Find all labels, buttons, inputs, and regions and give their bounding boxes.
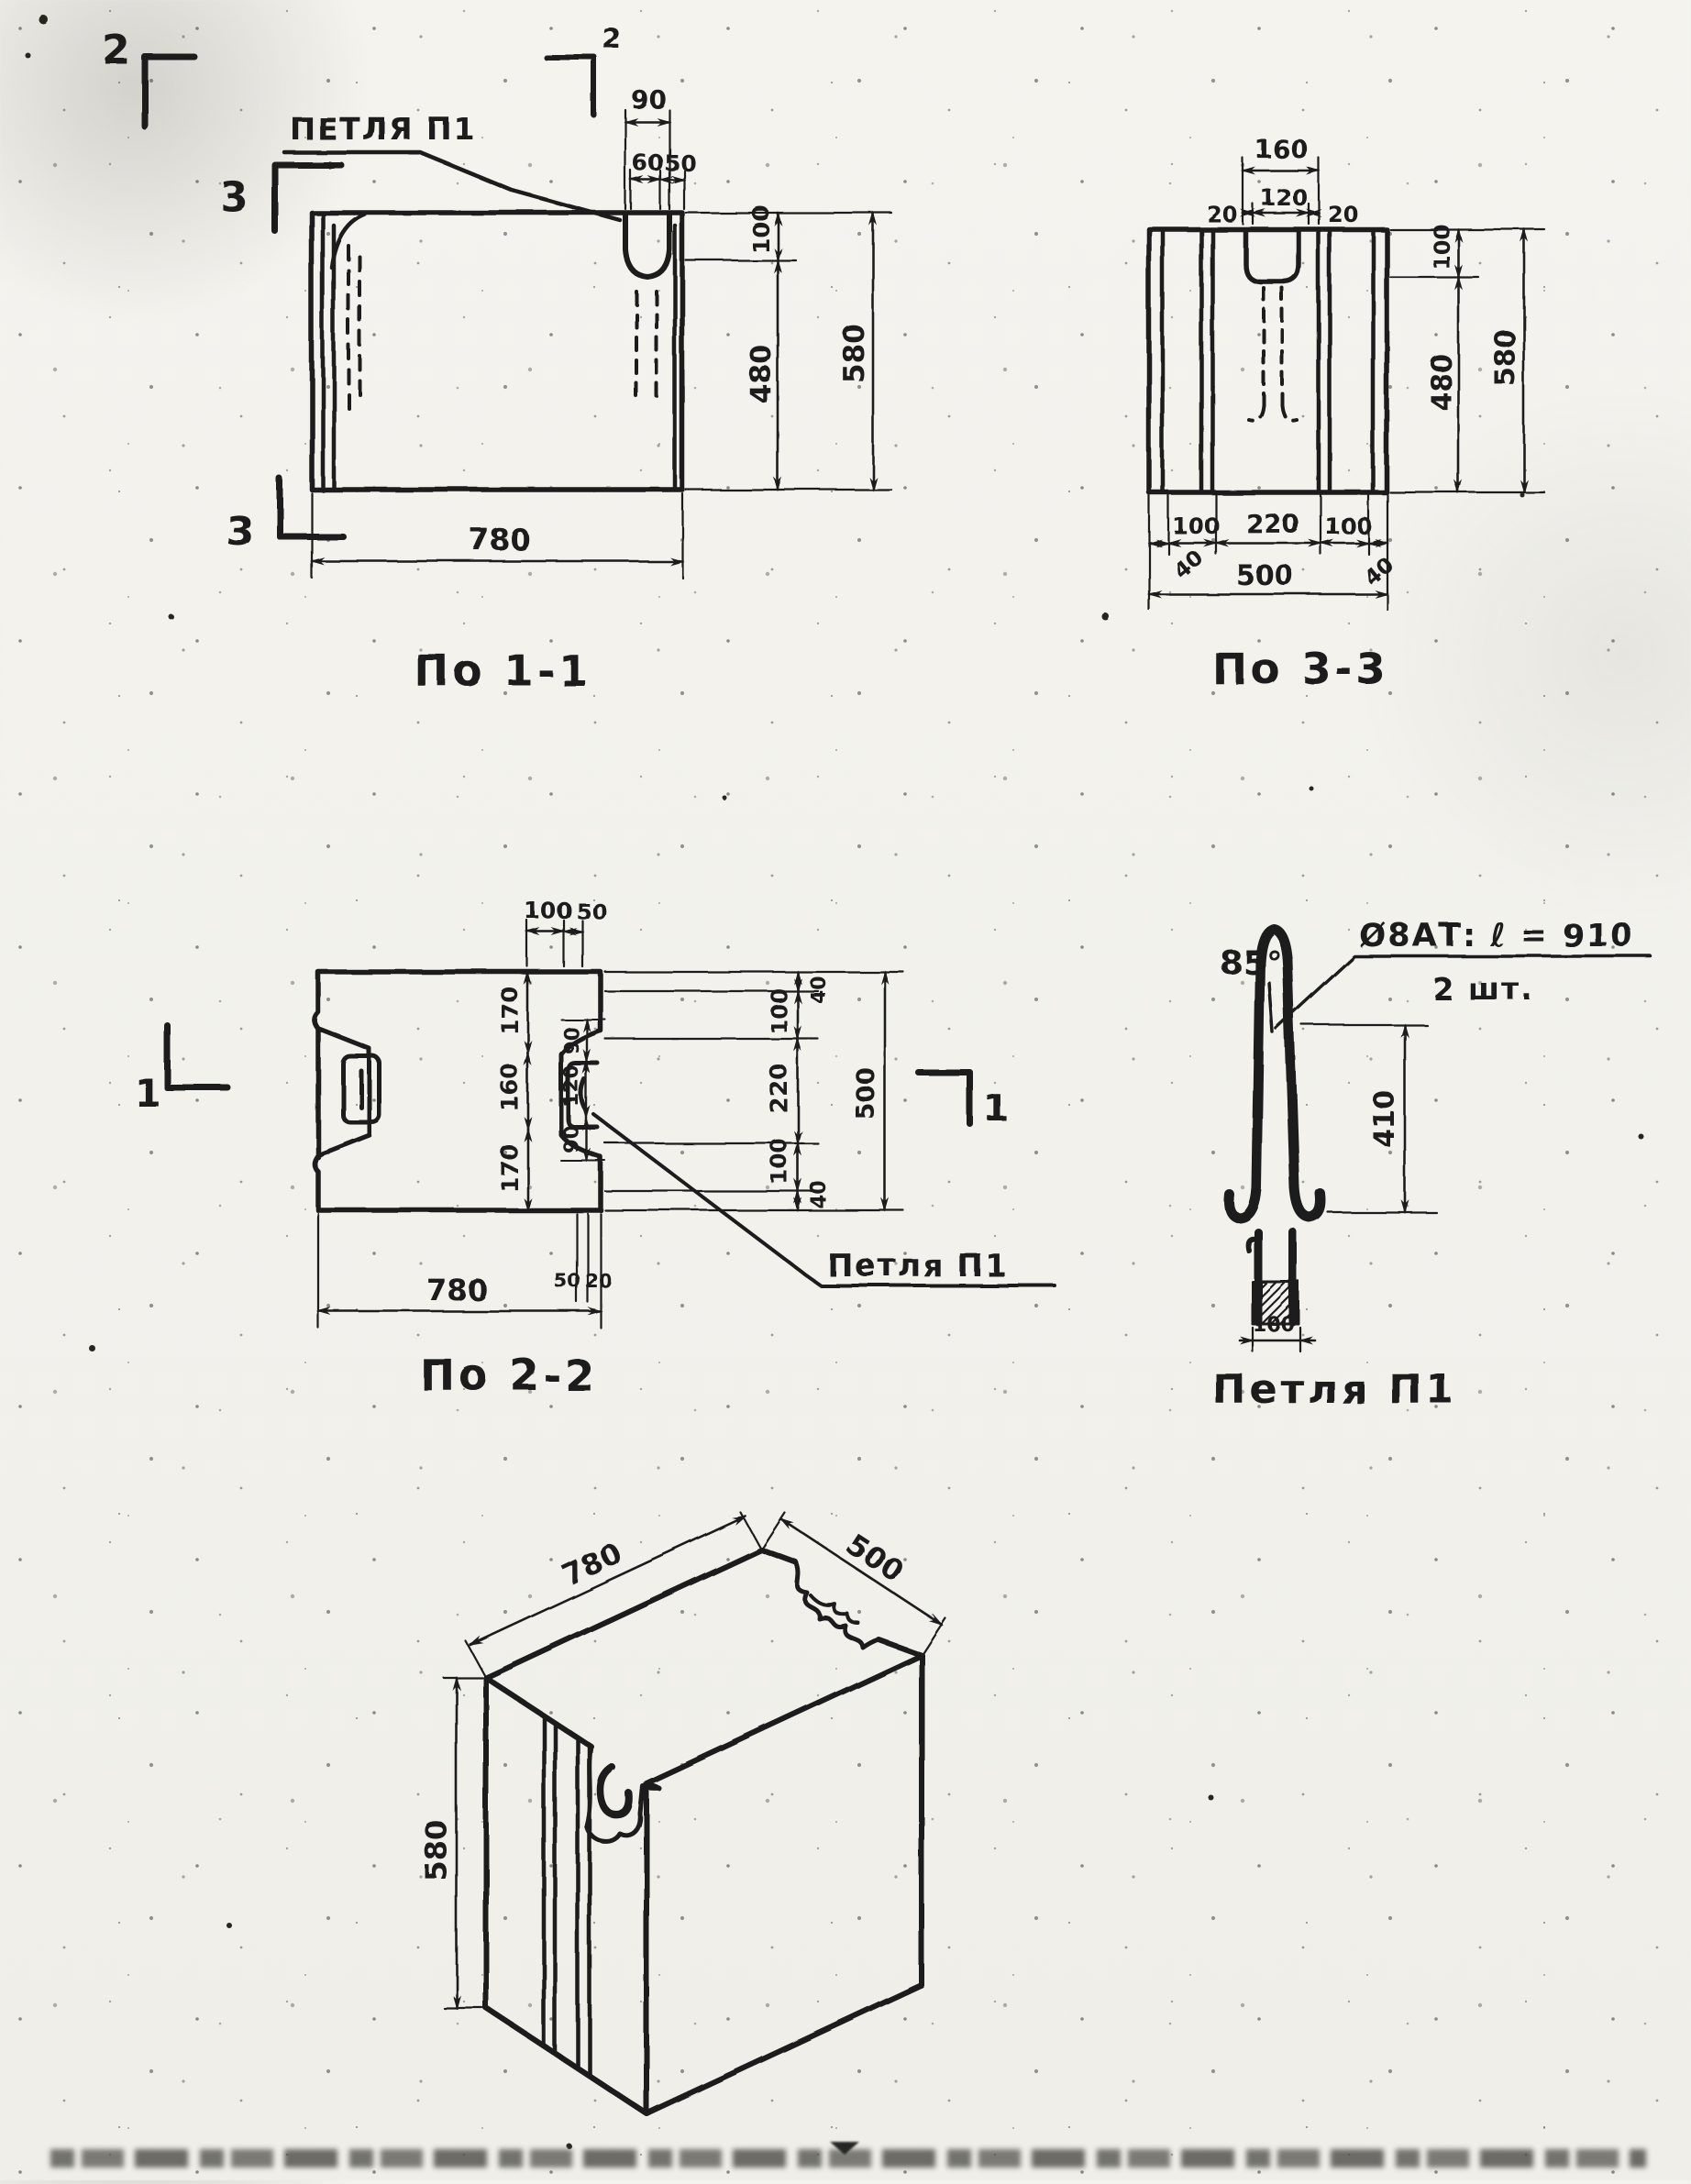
- dim-100t-label-po33: 100: [1429, 224, 1454, 270]
- caption-po11: По 1-1: [414, 646, 591, 696]
- dim-100a-label: 100: [767, 988, 792, 1034]
- dim-20-label-po22: 20: [585, 1270, 612, 1292]
- section-marker-3-top-label: 3: [220, 174, 249, 221]
- dim-160-label-po22: 160: [496, 1064, 523, 1111]
- dim-170b-label: 170: [496, 1144, 523, 1192]
- dim-100r-label: 100: [1324, 513, 1372, 539]
- dim-220-label-po22: 220: [766, 1064, 793, 1113]
- callout-line1: Ø8АТ: ℓ = 910: [1359, 918, 1635, 954]
- caption-po22: По 2-2: [420, 1351, 597, 1400]
- dim-480-label-po33: 480: [1426, 353, 1458, 411]
- dim-90a-label: 90: [561, 1026, 584, 1054]
- caption-p1: Петля П1: [1212, 1366, 1457, 1413]
- dim-90b-label: 90: [561, 1125, 584, 1153]
- dim-60-label: 60: [632, 149, 664, 176]
- callout-line2: 2 шт.: [1432, 971, 1534, 1007]
- dim-170a-label: 170: [496, 987, 523, 1034]
- dim-220-label: 220: [1245, 508, 1299, 538]
- dim-20l-label: 20: [1207, 202, 1237, 227]
- section-marker-2-left-label: 2: [103, 28, 131, 74]
- dim-410-label: 410: [1369, 1090, 1401, 1148]
- dim-580-label-po11: 580: [838, 324, 871, 383]
- section-marker-2-right-label: 2: [602, 23, 621, 55]
- caption-po33: По 3-3: [1212, 645, 1389, 694]
- petlya-label-po11: ПЕТЛЯ П1: [290, 111, 477, 147]
- petlya-label-po22: Петля П1: [827, 1248, 1009, 1285]
- angle-label: 85°: [1220, 944, 1282, 982]
- section-marker-1-left-label: 1: [134, 1070, 160, 1115]
- dim-40t-label: 40: [808, 976, 831, 1004]
- dim-100l-label: 100: [1172, 513, 1220, 539]
- dim-90-label: 90: [631, 84, 667, 115]
- dim-780-label-po11: 780: [470, 523, 531, 557]
- dim-120-label-po22: 120: [561, 1065, 584, 1108]
- dim-50-label: 50: [664, 149, 696, 176]
- dim-50t-label-po22: 50: [576, 899, 606, 924]
- iso-dim-580-label: 580: [419, 1820, 454, 1881]
- dim-100b-label: 100: [767, 1139, 792, 1185]
- dim-160-label: 160: [1254, 134, 1308, 164]
- dim-50-label-po22: 50: [554, 1270, 580, 1292]
- dim-500-label-po33: 500: [1236, 560, 1294, 592]
- caption-strip-triangle: [830, 2142, 859, 2155]
- section-marker-1-right-label: 1: [983, 1087, 1009, 1130]
- dim-40b-label: 40: [808, 1180, 831, 1208]
- dim-580-label-po33: 580: [1490, 329, 1522, 387]
- dim-120-label: 120: [1260, 184, 1308, 211]
- section-marker-3-bottom-label: 3: [226, 508, 254, 555]
- dim-100-label-p1: 100: [1253, 1314, 1295, 1337]
- dim-780-label-po22: 780: [426, 1273, 488, 1307]
- blueprint-canvas: 2 2 3 3: [0, 0, 1691, 2180]
- dim-20r-label: 20: [1328, 202, 1358, 227]
- dim-500-label-po22: 500: [850, 1067, 880, 1120]
- dim-100t-label-po22: 100: [525, 898, 572, 924]
- dim-100-label-po11: 100: [747, 205, 774, 253]
- dim-480-label-po11: 480: [745, 344, 778, 403]
